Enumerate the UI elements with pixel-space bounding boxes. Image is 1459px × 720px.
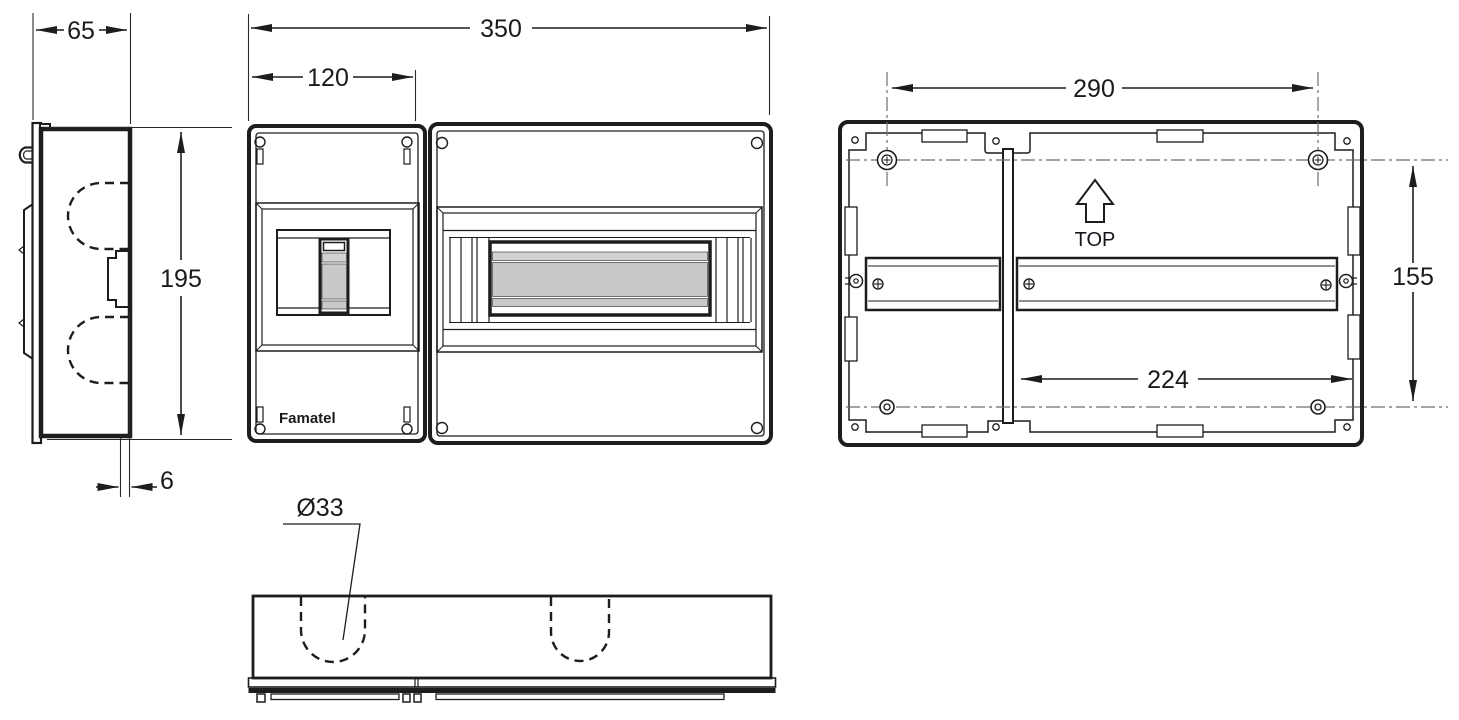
side-view [19, 123, 130, 443]
mounting-screw-icon [878, 151, 897, 170]
phillips-screw-icon [1321, 280, 1331, 290]
dimension-mounting-155: 155 [1392, 166, 1434, 401]
brand-label: Famatel [279, 410, 336, 427]
phillips-screw-icon [1024, 279, 1034, 289]
dim-label-front-width: 350 [480, 15, 522, 43]
front-view-left-panel: Famatel [249, 126, 425, 441]
side-slot [1348, 207, 1360, 255]
mounting-tab [403, 694, 410, 702]
technical-drawing-page: 65 195 6 [0, 0, 1459, 720]
breaker-module [320, 239, 348, 313]
din-rail-left [866, 258, 1000, 310]
breaker-row [490, 242, 710, 315]
phillips-screw-icon [873, 279, 883, 289]
mounting-hole-icon [880, 400, 894, 414]
vent-slot [1157, 425, 1203, 437]
orientation-label: TOP [1075, 229, 1116, 251]
dim-label-lid-protrusion: 6 [160, 467, 174, 495]
side-slot [845, 317, 857, 361]
mounting-screw-icon [1309, 151, 1328, 170]
side-slot [1348, 315, 1360, 359]
mounting-hole-icon [1311, 400, 1325, 414]
dim-label-knockout: Ø33 [296, 494, 343, 522]
divider-bar [1003, 149, 1013, 423]
vent-slot [1157, 130, 1203, 142]
dimension-mounting-290: 290 [892, 75, 1313, 103]
front-view-right-panel [430, 124, 771, 443]
vent-slot [922, 130, 967, 142]
mounting-tab [436, 694, 724, 700]
bottom-view [249, 596, 776, 702]
wall-clip [20, 148, 33, 163]
mounting-tab [414, 694, 421, 702]
back-view: TOP [840, 72, 1448, 445]
dimension-left-panel-width-120: 120 [252, 64, 416, 121]
dimension-side-depth-65: 65 [33, 13, 131, 124]
vent-slot [922, 425, 967, 437]
dim-label-mounting-v: 155 [1392, 263, 1434, 291]
mounting-tab [257, 694, 265, 702]
dim-label-side-depth: 65 [67, 17, 95, 45]
technical-drawing-canvas: 65 195 6 [0, 0, 1459, 720]
din-rail-right [1017, 258, 1337, 310]
dim-label-left-panel-width: 120 [307, 64, 349, 92]
mounting-tab [271, 694, 399, 700]
dim-label-side-height: 195 [160, 265, 202, 293]
dim-label-mounting-h: 290 [1073, 75, 1115, 103]
side-slot [845, 207, 857, 255]
dim-label-rail-span: 224 [1147, 366, 1189, 394]
